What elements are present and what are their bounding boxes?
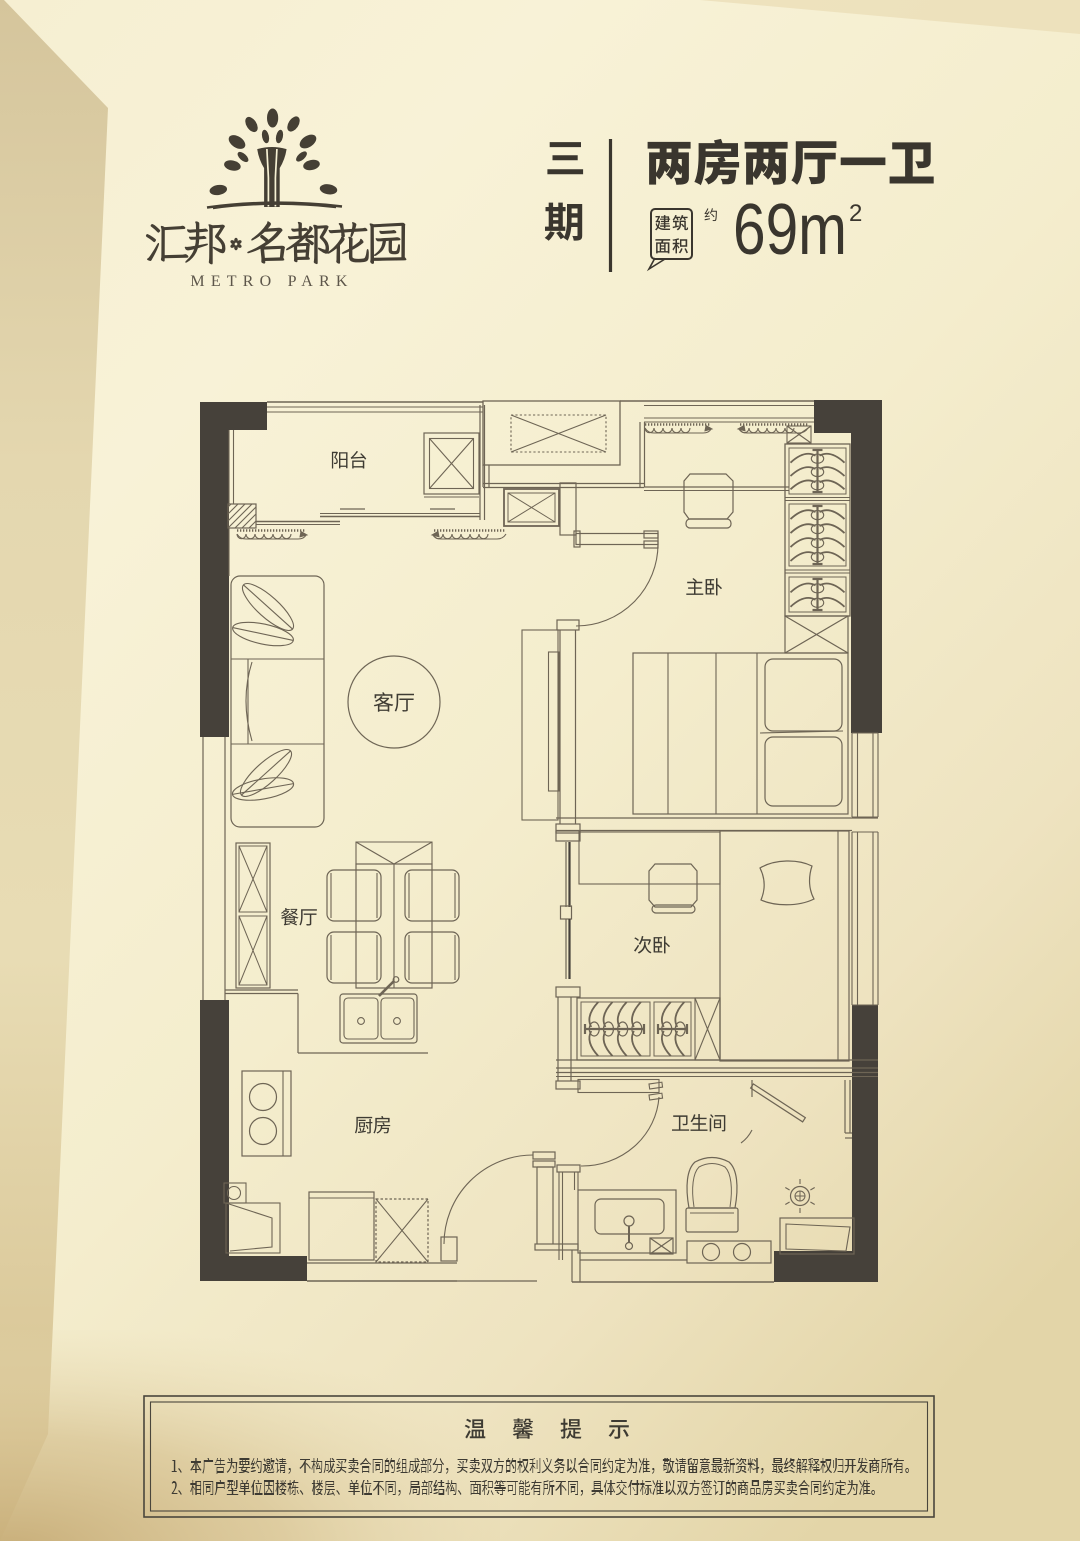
svg-text:2: 2 <box>849 200 862 227</box>
svg-text:69m: 69m <box>733 190 847 270</box>
svg-text:METRO PARK: METRO PARK <box>190 273 353 290</box>
